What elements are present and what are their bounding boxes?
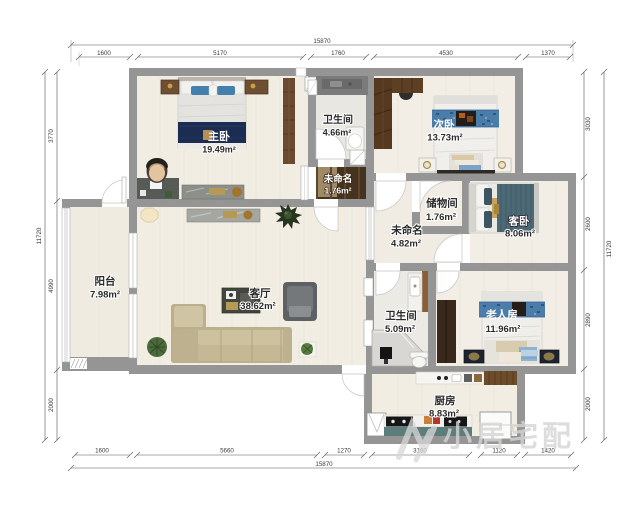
svg-text:客厅: 客厅	[249, 287, 271, 300]
svg-text:2000: 2000	[585, 397, 592, 411]
svg-text:1370: 1370	[541, 50, 555, 57]
svg-text:1270: 1270	[337, 448, 351, 455]
svg-text:阳台: 阳台	[95, 275, 116, 288]
svg-text:2890: 2890	[585, 313, 592, 327]
svg-text:客卧: 客卧	[508, 215, 530, 228]
svg-text:2600: 2600	[585, 217, 592, 231]
svg-text:4990: 4990	[48, 279, 55, 293]
svg-text:38.62m²: 38.62m²	[240, 301, 275, 312]
svg-text:老人房: 老人房	[485, 308, 518, 321]
svg-text:13.73m²: 13.73m²	[427, 133, 462, 144]
svg-text:4.66m²: 4.66m²	[323, 128, 352, 138]
svg-text:3030: 3030	[585, 117, 592, 131]
svg-text:1.76m²: 1.76m²	[325, 186, 352, 196]
svg-text:1600: 1600	[95, 448, 109, 455]
svg-text:未命名: 未命名	[323, 173, 353, 185]
svg-text:15870: 15870	[313, 38, 331, 45]
svg-text:11.96m²: 11.96m²	[486, 324, 521, 335]
svg-text:1.76m²: 1.76m²	[426, 212, 456, 223]
svg-text:15870: 15870	[315, 461, 333, 468]
svg-text:次卧: 次卧	[434, 118, 455, 131]
svg-text:3770: 3770	[48, 129, 55, 143]
svg-text:小居宅配: 小居宅配	[443, 419, 575, 453]
svg-text:卫生间: 卫生间	[323, 113, 353, 126]
svg-text:5170: 5170	[213, 50, 227, 57]
svg-text:2000: 2000	[48, 398, 55, 412]
svg-text:11720: 11720	[36, 227, 43, 244]
svg-text:8.06m²: 8.06m²	[505, 229, 535, 240]
svg-text:5.09m²: 5.09m²	[385, 324, 415, 335]
svg-text:4530: 4530	[439, 50, 453, 57]
svg-text:5660: 5660	[220, 448, 234, 455]
svg-text:1600: 1600	[97, 50, 111, 57]
svg-text:4.82m²: 4.82m²	[391, 239, 421, 250]
svg-text:卫生间: 卫生间	[385, 309, 417, 322]
svg-text:未命名: 未命名	[390, 224, 423, 237]
svg-text:厨房: 厨房	[435, 394, 456, 407]
svg-text:11720: 11720	[606, 240, 613, 257]
svg-text:7.98m²: 7.98m²	[90, 290, 120, 301]
svg-text:主卧: 主卧	[208, 129, 230, 143]
svg-text:8.83m²: 8.83m²	[429, 409, 459, 420]
svg-text:储物间: 储物间	[426, 197, 458, 210]
svg-text:19.49m²: 19.49m²	[202, 145, 236, 155]
svg-text:1760: 1760	[331, 50, 345, 57]
